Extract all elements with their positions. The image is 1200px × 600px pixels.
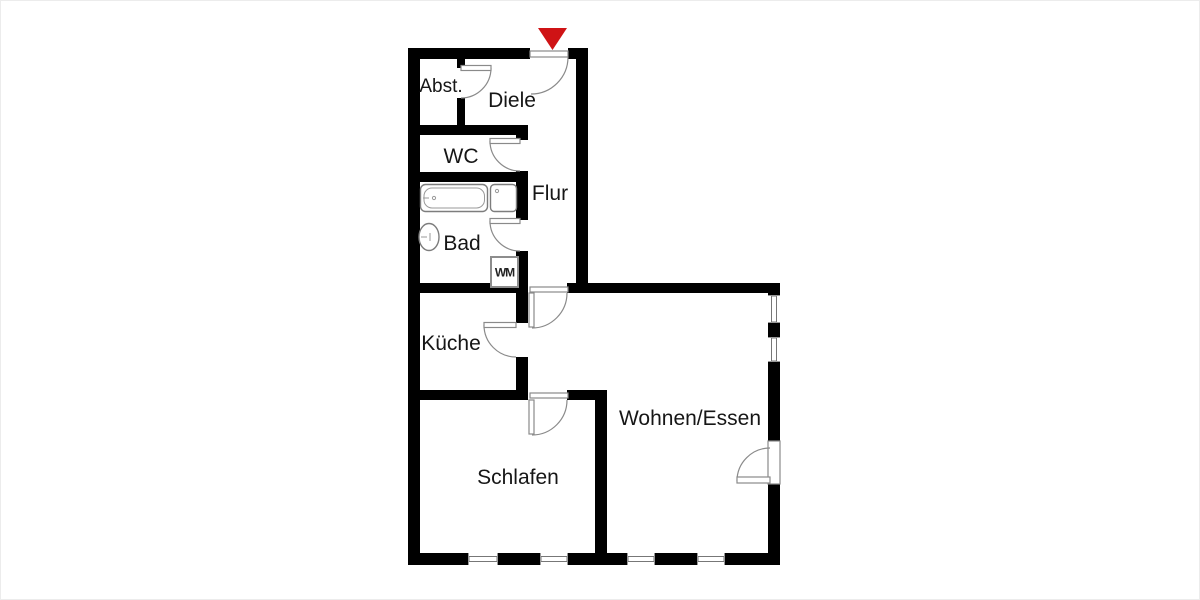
entrance-door (530, 51, 568, 94)
window-schlafen-2 (540, 553, 568, 565)
room-label-wohnen: Wohnen/Essen (619, 407, 761, 430)
room-labels: Abst. Diele WC Flur Bad Küche Wohnen/Ess… (419, 76, 761, 489)
window-wohnen-east-2 (768, 337, 780, 362)
washbasin-icon (419, 224, 439, 251)
room-label-schlafen: Schlafen (477, 466, 559, 489)
washing-machine-icon: WM (491, 257, 518, 287)
wall-segment (516, 171, 528, 220)
walls (408, 48, 780, 565)
window-wohnen-east-1 (768, 295, 780, 323)
window-schlafen-1 (468, 553, 498, 565)
wall-segment (768, 484, 780, 565)
wall-segment (568, 553, 627, 565)
window-wohnen-1 (627, 553, 655, 565)
wall-segment (498, 553, 540, 565)
floor-plan-page: WM Abst. Diele WC Flur Bad Küche Wohnen/… (0, 0, 1200, 600)
kueche-door (484, 323, 516, 358)
wohnen-door (529, 287, 568, 328)
wall-segment (516, 357, 528, 392)
room-label-wc: WC (444, 145, 479, 168)
floor-plan-svg: WM Abst. Diele WC Flur Bad Küche Wohnen/… (0, 0, 1200, 600)
room-label-bad: Bad (443, 232, 480, 255)
balcony-door (737, 441, 780, 484)
wall-segment (768, 323, 780, 337)
wall-segment (408, 172, 516, 182)
wall-segment (576, 48, 588, 293)
washing-machine-label: WM (495, 266, 515, 280)
shower-basin-icon (491, 185, 517, 212)
wall-segment (567, 283, 780, 293)
entrance-arrow-icon (538, 28, 567, 50)
room-label-diele: Diele (488, 89, 536, 112)
wall-segment (768, 283, 780, 295)
room-label-kueche: Küche (421, 332, 481, 355)
wall-segment (516, 125, 528, 140)
wall-segment (768, 362, 780, 441)
room-label-abst: Abst. (419, 76, 462, 97)
wall-segment (408, 390, 528, 400)
window-wohnen-2 (697, 553, 725, 565)
bad-door (490, 219, 520, 252)
windows (468, 295, 780, 565)
abst-door (461, 66, 491, 99)
bathtub-icon (421, 185, 488, 212)
wall-segment (655, 553, 697, 565)
wall-segment (408, 125, 528, 135)
wall-segment (408, 48, 530, 59)
wc-door (490, 139, 520, 172)
room-label-flur: Flur (532, 182, 568, 205)
wall-segment (408, 553, 468, 565)
wall-segment (725, 553, 780, 565)
schlafen-door (529, 393, 568, 435)
wall-segment (595, 390, 607, 565)
